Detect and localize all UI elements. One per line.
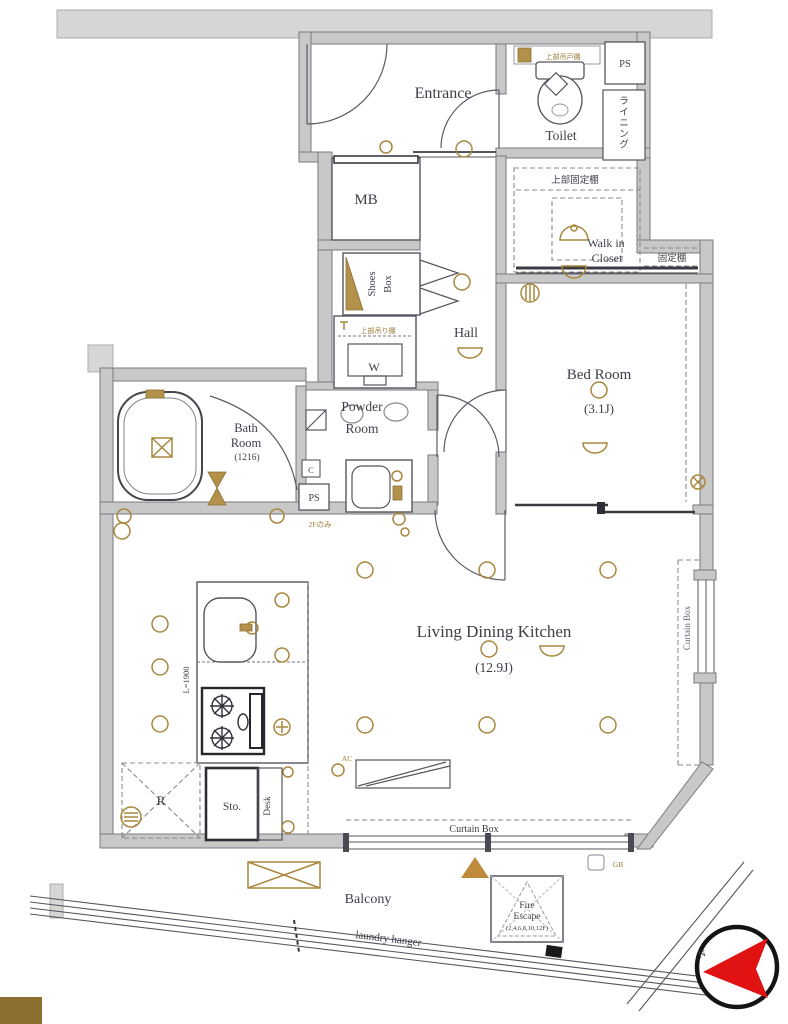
label-bath-size: (1216) <box>234 452 259 463</box>
label-desk: Desk <box>263 796 273 816</box>
label-lining: ライニング <box>619 96 629 151</box>
label-powder-line2: Room <box>345 421 379 436</box>
label-wic-line1: Walk in <box>587 236 624 250</box>
label-shoes-line2: Box <box>383 275 394 293</box>
label-ldk-size: (12.9J) <box>475 660 513 675</box>
label-curtain-box-bottom: Curtain Box <box>449 824 498 835</box>
ac-unit <box>332 760 450 788</box>
mb-closet-washer <box>332 141 420 388</box>
label-entrance: Entrance <box>415 85 472 102</box>
label-toilet: Toilet <box>545 128 577 143</box>
label-gas-box: GB <box>613 860 623 869</box>
label-floor-note: 2Fのみ <box>309 520 332 529</box>
label-laundry-hanger: laundry hanger <box>355 929 423 949</box>
label-cold-duct: C <box>308 465 314 475</box>
label-bath-line1: Bath <box>234 421 258 435</box>
label-ldk: Living Dining Kitchen <box>417 622 572 641</box>
label-powder-line1: Powder <box>341 399 383 414</box>
windows <box>343 570 716 852</box>
label-upper-fixed-shelf: 上部固定棚 <box>551 174 599 186</box>
label-mb: MB <box>354 192 377 208</box>
label-bed-size: (3.1J) <box>584 401 614 416</box>
label-washer-upper-shelf: 上部吊り棚 <box>361 326 396 335</box>
label-fixed-shelf: 固定棚 <box>658 252 687 264</box>
label-ps-top: PS <box>619 59 631 70</box>
label-counter-length: L=1900 <box>181 667 191 694</box>
label-toilet-upper-shelf: 上部吊戸棚 <box>546 52 581 61</box>
bath-fixtures <box>118 390 226 505</box>
floor-plan-drawing: Entrance Toilet PS ライニング 上部吊戸棚 MB Shoes … <box>0 0 788 1024</box>
label-fire-escape-line1: Fire <box>519 901 534 911</box>
compass <box>697 927 777 1007</box>
label-fridge: R <box>157 793 166 808</box>
label-hall: Hall <box>454 326 478 341</box>
label-bath-line2: Room <box>231 436 262 450</box>
label-washer: W <box>368 360 380 374</box>
label-balcony: Balcony <box>345 892 392 907</box>
label-shoes-line1: Shoes <box>367 271 378 296</box>
label-fire-escape-line2: Escape <box>514 912 541 922</box>
label-curtain-box-right: Curtain Box <box>682 605 692 650</box>
label-ps-powder: PS <box>308 493 319 504</box>
label-wic-line2: Closet <box>592 251 623 265</box>
floor-plan-page: Entrance Toilet PS ライニング 上部吊戸棚 MB Shoes … <box>0 0 788 1024</box>
label-bed-room: Bed Room <box>567 367 632 383</box>
label-storage: Sto. <box>223 801 241 813</box>
label-fire-escape-line3: (2,4,6,8,10,12F) <box>506 925 548 932</box>
label-ac: AC <box>342 754 352 763</box>
